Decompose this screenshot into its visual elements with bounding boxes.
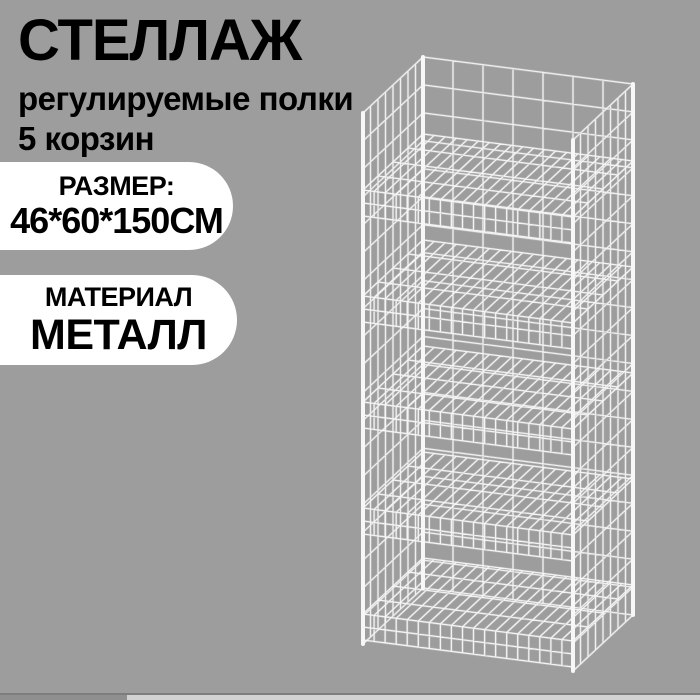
- material-badge: МАТЕРИАЛ МЕТАЛЛ: [0, 275, 237, 365]
- bottom-edge-light-segment: [127, 695, 700, 700]
- page-bottom-edge: [0, 693, 700, 700]
- size-badge: РАЗМЕР: 46*60*150СМ: [0, 162, 233, 250]
- product-promo-card: СТЕЛЛАЖ регулируемые полки 5 корзин РАЗМ…: [0, 0, 700, 700]
- product-subtitle-shelves: регулируемые полки: [18, 79, 353, 119]
- product-title: СТЕЛЛАЖ: [18, 12, 353, 70]
- headline-block: СТЕЛЛАЖ регулируемые полки 5 корзин: [18, 12, 353, 159]
- material-badge-label: МАТЕРИАЛ: [45, 282, 192, 312]
- product-subtitle-baskets: 5 корзин: [18, 119, 353, 159]
- size-badge-value: 46*60*150СМ: [10, 201, 223, 241]
- size-badge-label: РАЗМЕР:: [59, 171, 175, 201]
- bottom-edge-dark-segment: [0, 695, 127, 700]
- material-badge-value: МЕТАЛЛ: [30, 312, 207, 358]
